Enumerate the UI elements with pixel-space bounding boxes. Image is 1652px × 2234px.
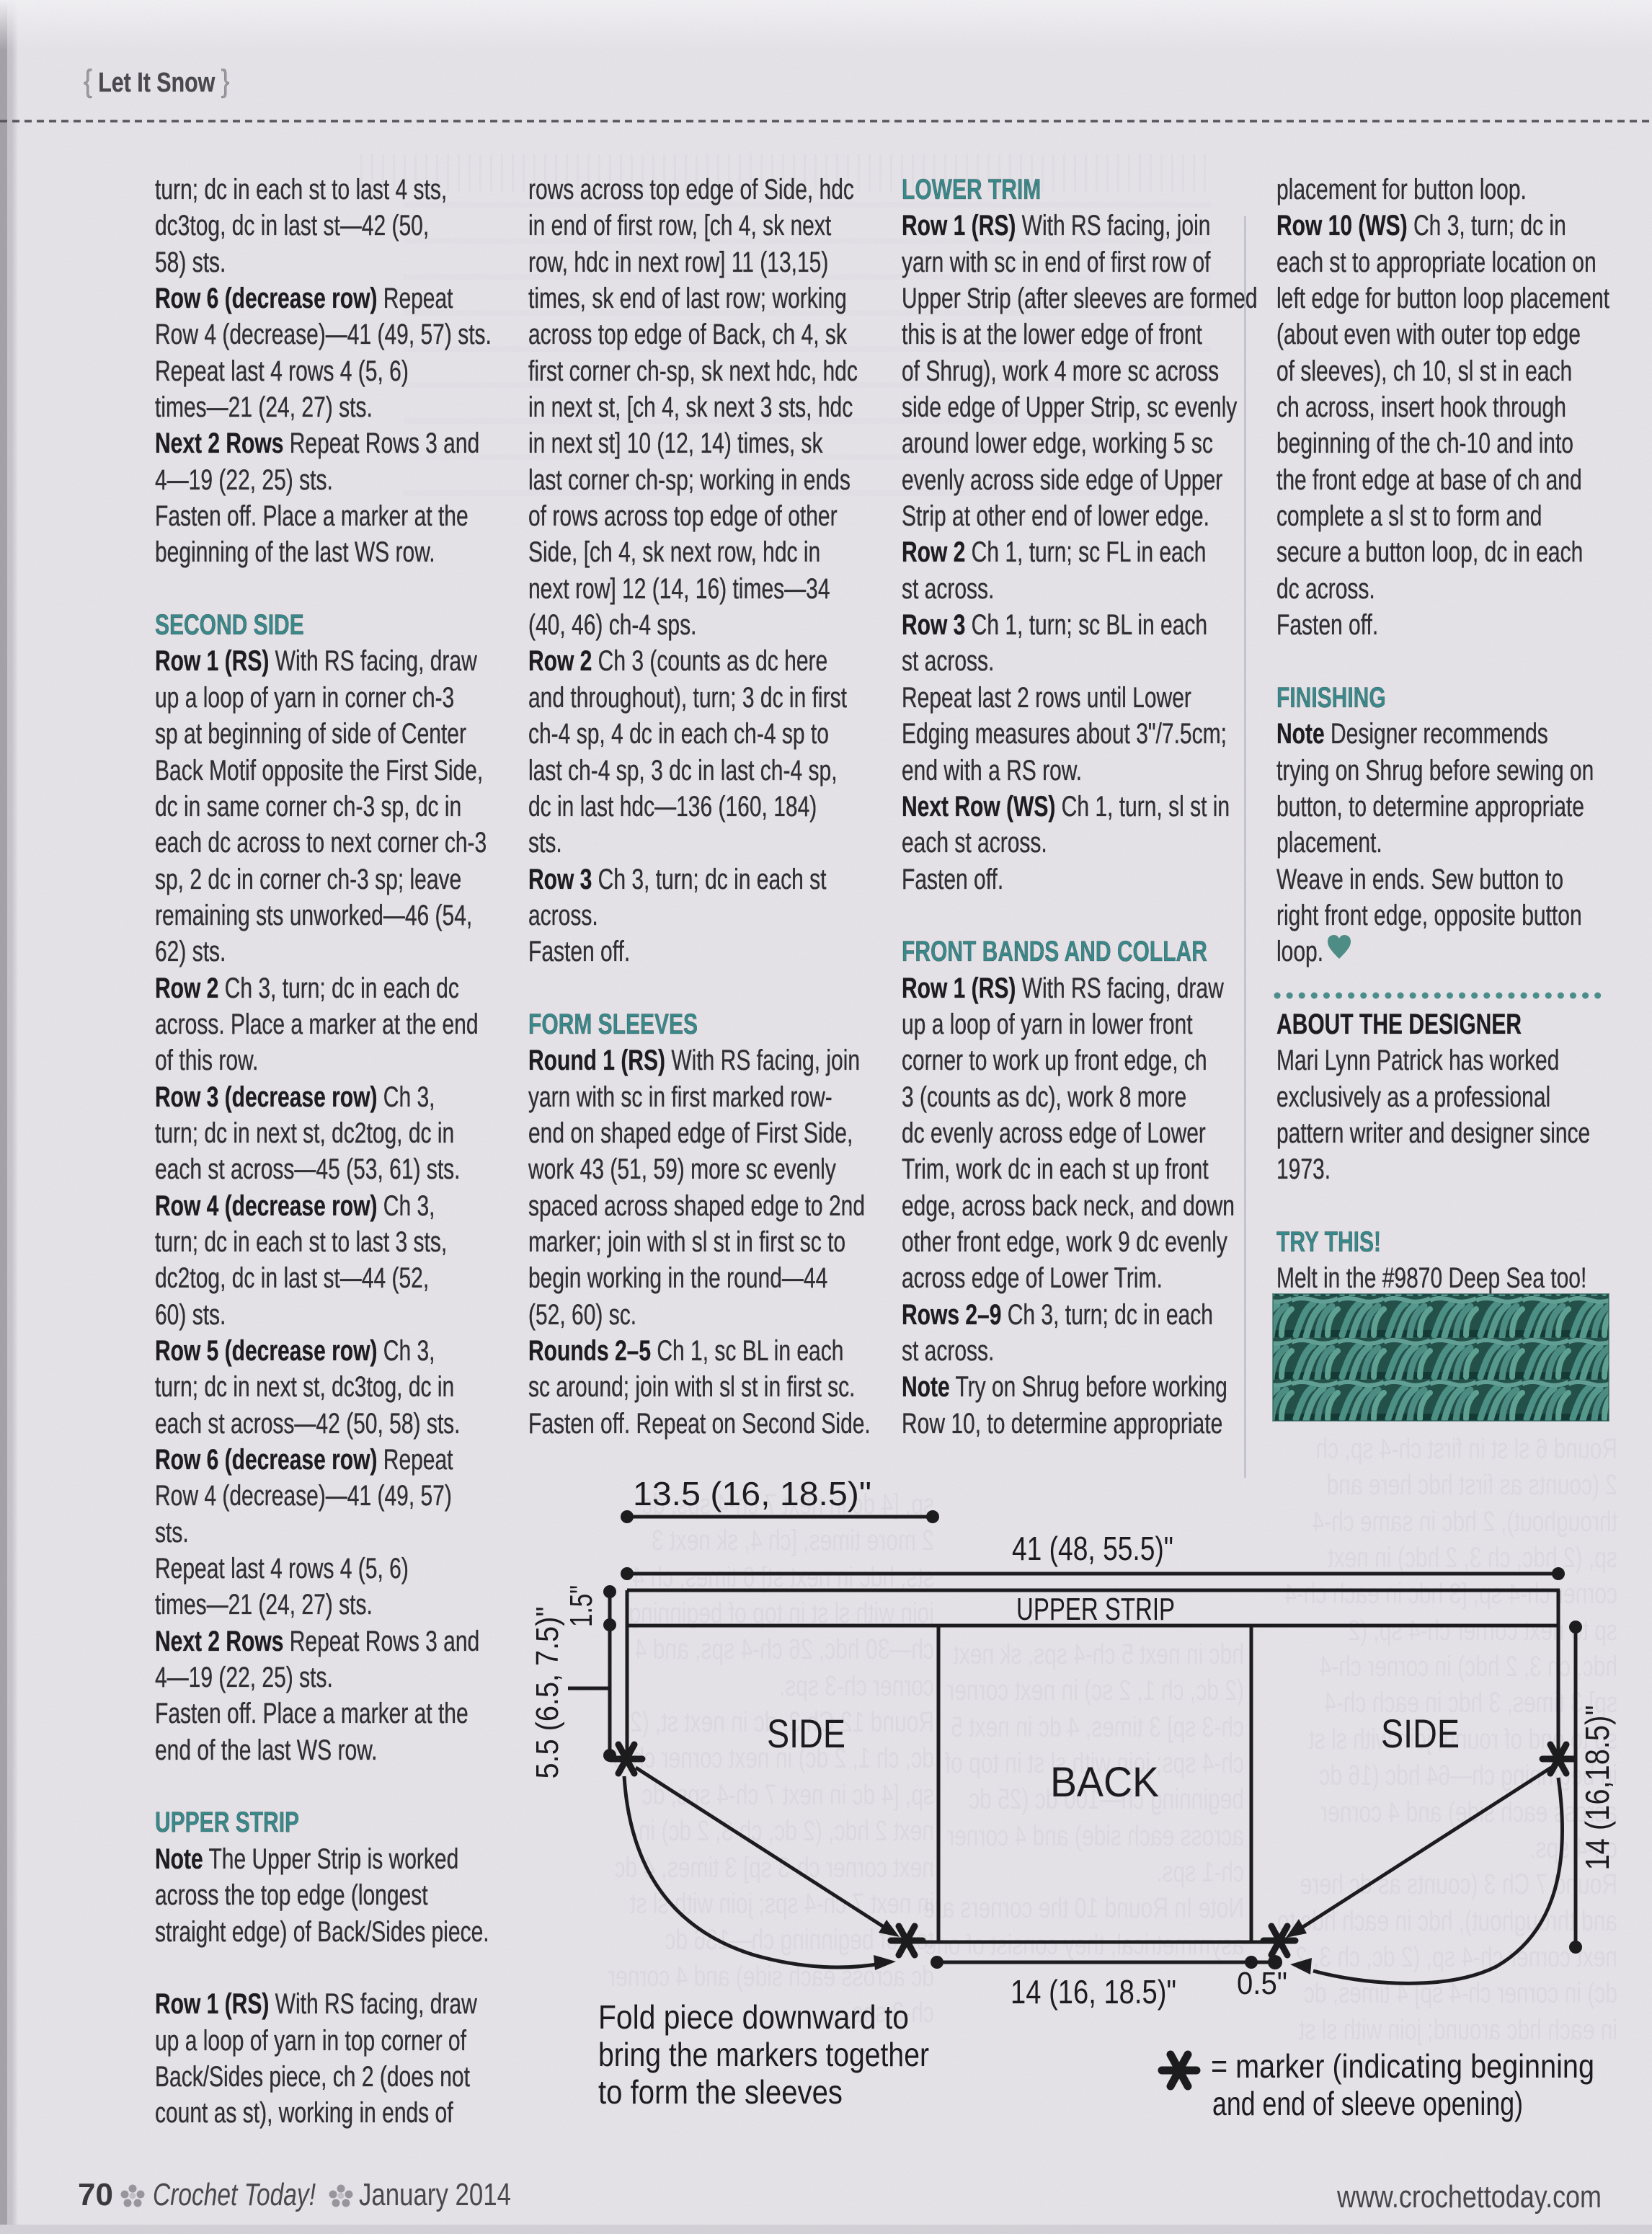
svg-text:bring the markers together: bring the markers together [598,2036,929,2073]
svg-text:14 (16,18.5)": 14 (16,18.5)" [1578,1706,1616,1871]
svg-text:70: 70 [78,2177,113,2212]
svg-text:5.5 (6.5, 7.5)": 5.5 (6.5, 7.5)" [530,1607,565,1779]
svg-text:www.crochettoday.com: www.crochettoday.com [1336,2179,1602,2215]
svg-text:SIDE: SIDE [1381,1711,1460,1756]
svg-text:BACK: BACK [1050,1759,1159,1806]
svg-text:14 (16, 18.5)": 14 (16, 18.5)" [1011,1973,1176,2011]
svg-text:Crochet Today!: Crochet Today! [153,2177,316,2212]
svg-text:January 2014: January 2014 [359,2177,511,2212]
svg-text:to form the sleeves: to form the sleeves [598,2073,843,2111]
svg-text:UPPER STRIP: UPPER STRIP [1016,1592,1175,1627]
svg-text:= marker (indicating beginning: = marker (indicating beginning [1211,2047,1594,2085]
svg-text:and end of sleeve opening): and end of sleeve opening) [1212,2085,1523,2122]
svg-text:Fold piece downward to: Fold piece downward to [598,1998,909,2036]
svg-text:SIDE: SIDE [767,1711,845,1756]
svg-text:0.5": 0.5" [1237,1966,1287,2001]
svg-text:1.5": 1.5" [564,1585,599,1627]
svg-text:13.5 (16, 18.5)": 13.5 (16, 18.5)" [633,1475,871,1512]
svg-text:41 (48, 55.5)": 41 (48, 55.5)" [1012,1530,1173,1567]
